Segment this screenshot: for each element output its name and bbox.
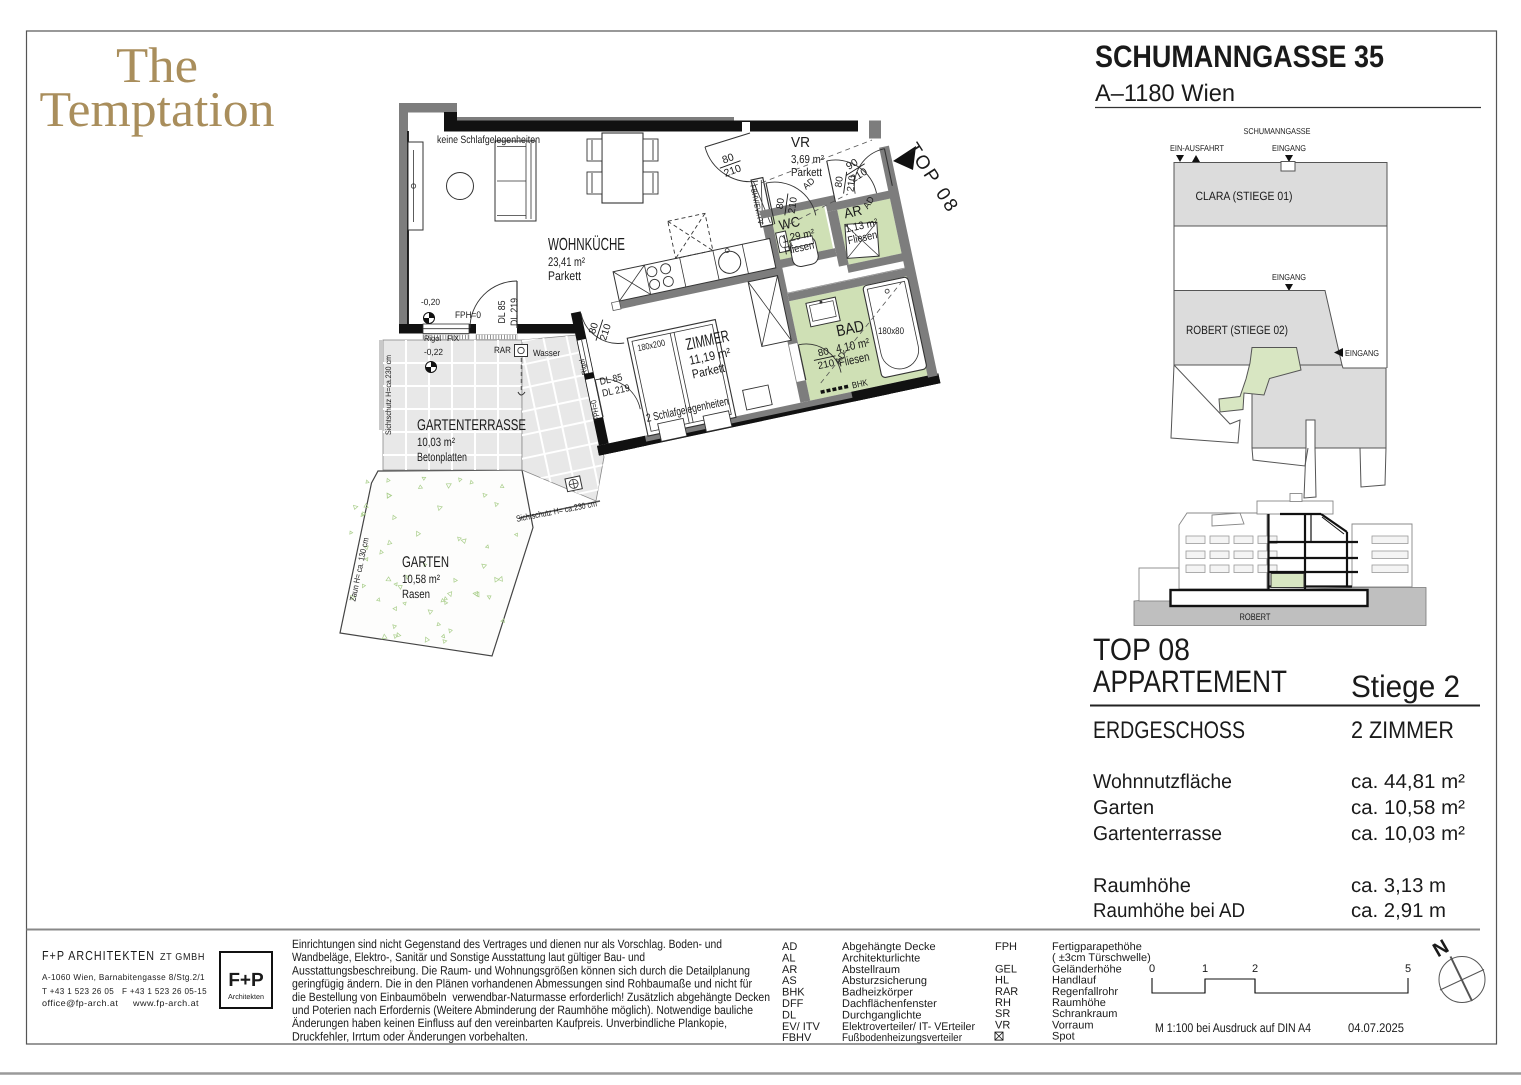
svg-text:EINGANG: EINGANG xyxy=(1272,143,1306,153)
svg-text:WOHNKÜCHE: WOHNKÜCHE xyxy=(548,234,625,254)
svg-text:AR: AR xyxy=(782,964,797,976)
svg-text:Badheizkörper: Badheizkörper xyxy=(842,987,913,999)
svg-text:APPARTEMENT: APPARTEMENT xyxy=(1093,664,1287,699)
svg-text:AS: AS xyxy=(782,975,797,987)
svg-text:FIX: FIX xyxy=(447,334,460,343)
svg-text:2 ZIMMER: 2 ZIMMER xyxy=(1351,717,1454,744)
svg-text:RAR: RAR xyxy=(494,345,511,355)
svg-text:Änderungen haben keinen Einflu: Änderungen haben keinen Einfluss auf den… xyxy=(292,1016,727,1030)
svg-text:0: 0 xyxy=(1149,963,1155,975)
svg-text:Schrankraum: Schrankraum xyxy=(1052,1008,1117,1020)
svg-text:die Bestellung von Einbaumöbel: die Bestellung von Einbaumöbeln verwendb… xyxy=(292,990,770,1004)
svg-text:Einrichtungen sind nicht Gegen: Einrichtungen sind nicht Gegenstand des … xyxy=(292,937,722,951)
svg-text:-0,22: -0,22 xyxy=(424,347,443,357)
svg-text:Temptation: Temptation xyxy=(40,81,275,137)
svg-text:Durchganglichte: Durchganglichte xyxy=(842,1009,922,1021)
svg-text:office@fp-arch.at www.fp-a: office@fp-arch.at www.fp-arch.at xyxy=(42,998,199,1008)
svg-text:2: 2 xyxy=(1252,963,1258,975)
svg-text:ZT GMBH: ZT GMBH xyxy=(160,952,205,963)
svg-text:Geländerhöhe: Geländerhöhe xyxy=(1052,963,1122,975)
svg-text:BHK: BHK xyxy=(782,987,805,999)
svg-text:HL: HL xyxy=(995,975,1009,987)
svg-text:VR: VR xyxy=(791,135,810,151)
svg-text:FPH: FPH xyxy=(995,941,1017,953)
svg-text:Vorraum: Vorraum xyxy=(1052,1019,1094,1031)
svg-text:Architekten: Architekten xyxy=(228,992,264,1001)
svg-text:DL: DL xyxy=(782,1009,796,1021)
svg-text:Handlauf: Handlauf xyxy=(1052,975,1097,987)
svg-text:EINGANG: EINGANG xyxy=(1345,348,1379,358)
svg-text:Gartenterrasse: Gartenterrasse xyxy=(1093,823,1222,845)
svg-text:A-1060 Wien, Barnabitengasse 8: A-1060 Wien, Barnabitengasse 8/Stg.2/1 xyxy=(42,972,205,982)
svg-text:Abstellraum: Abstellraum xyxy=(842,964,900,976)
svg-text:Raumhöhe: Raumhöhe xyxy=(1093,875,1191,897)
svg-text:EV/ ITV: EV/ ITV xyxy=(782,1021,821,1033)
svg-text:keine Schlafgelegenheiten: keine Schlafgelegenheiten xyxy=(437,134,540,146)
svg-text:AL: AL xyxy=(782,952,795,964)
svg-text:80: 80 xyxy=(775,197,788,210)
svg-text:23,41 m²: 23,41 m² xyxy=(548,255,585,269)
svg-text:1: 1 xyxy=(1202,963,1208,975)
svg-text:ca. 2,91 m: ca. 2,91 m xyxy=(1351,900,1446,922)
svg-text:FBHV: FBHV xyxy=(782,1032,812,1044)
svg-text:-0,20: -0,20 xyxy=(421,297,440,307)
svg-text:Dachflächenfenster: Dachflächenfenster xyxy=(842,998,937,1010)
svg-text:SCHUMANNGASSE 35: SCHUMANNGASSE 35 xyxy=(1095,39,1384,74)
svg-text:TOP 08: TOP 08 xyxy=(1093,632,1190,667)
svg-text:180x80: 180x80 xyxy=(878,326,904,337)
svg-text:SCHUMANNGASSE: SCHUMANNGASSE xyxy=(1244,126,1311,136)
svg-text:Architekturlichte: Architekturlichte xyxy=(842,952,920,964)
svg-text:DFF: DFF xyxy=(782,998,804,1010)
svg-text:ca. 10,03 m²: ca. 10,03 m² xyxy=(1351,823,1465,845)
svg-text:Parkett: Parkett xyxy=(548,269,581,283)
svg-text:5: 5 xyxy=(1405,963,1411,975)
svg-text:ca. 10,58 m²: ca. 10,58 m² xyxy=(1351,797,1465,819)
svg-text:A–1180 Wien: A–1180 Wien xyxy=(1095,80,1235,107)
svg-text:F+P: F+P xyxy=(228,970,264,991)
svg-text:und Poterien nach Erfordernis: und Poterien nach Erfordernis (Weitere A… xyxy=(292,1003,753,1017)
svg-text:GEL: GEL xyxy=(995,963,1017,975)
svg-text:RAR: RAR xyxy=(995,986,1018,998)
svg-text:Regenfallrohr: Regenfallrohr xyxy=(1052,986,1118,998)
svg-text:Raumhöhe: Raumhöhe xyxy=(1052,997,1106,1009)
svg-text:Garten: Garten xyxy=(1093,797,1154,819)
svg-text:Wohnnutzfläche: Wohnnutzfläche xyxy=(1093,771,1232,793)
svg-text:Sichtschutz H=ca.230 cm: Sichtschutz H=ca.230 cm xyxy=(384,355,393,435)
svg-text:AD: AD xyxy=(782,941,797,953)
svg-text:Raumhöhe bei AD: Raumhöhe bei AD xyxy=(1093,900,1245,922)
svg-text:Rigol: Rigol xyxy=(424,334,441,343)
svg-text:CLARA (STIEGE 01): CLARA (STIEGE 01) xyxy=(1196,189,1293,203)
svg-text:Stiege 2: Stiege 2 xyxy=(1351,669,1460,704)
svg-text:Absturzsicherung: Absturzsicherung xyxy=(842,975,927,987)
svg-text:10,03 m²: 10,03 m² xyxy=(417,435,455,449)
svg-text:T +43 1 523 26 05 F +43 1 52: T +43 1 523 26 05 F +43 1 523 26 05-15 xyxy=(42,986,207,996)
svg-text:EINGANG: EINGANG xyxy=(1272,272,1306,282)
svg-text:FPH=0: FPH=0 xyxy=(455,310,481,321)
svg-text:EIN-AUSFAHRT: EIN-AUSFAHRT xyxy=(1170,143,1224,153)
svg-text:SR: SR xyxy=(995,1008,1010,1020)
svg-text:Spot: Spot xyxy=(1052,1031,1075,1043)
svg-text:Fußbodenheizungsverteiler: Fußbodenheizungsverteiler xyxy=(842,1032,962,1044)
svg-text:F+P ARCHITEKTEN: F+P ARCHITEKTEN xyxy=(42,948,155,963)
svg-text:80: 80 xyxy=(833,175,846,188)
svg-text:ERDGESCHOSS: ERDGESCHOSS xyxy=(1093,717,1245,744)
svg-text:RH: RH xyxy=(995,997,1011,1009)
svg-text:geringfügig ändern. Die in den: geringfügig ändern. Die in den Plänen vo… xyxy=(292,977,752,991)
svg-text:ca. 3,13 m: ca. 3,13 m xyxy=(1351,875,1446,897)
svg-text:M 1:100 bei Ausdruck auf DIN A: M 1:100 bei Ausdruck auf DIN A4 xyxy=(1155,1021,1311,1035)
svg-text:DL 219: DL 219 xyxy=(510,298,521,326)
svg-text:GARTENTERRASSE: GARTENTERRASSE xyxy=(417,417,526,434)
svg-text:Wandbeläge, Elektro-, Sanitär: Wandbeläge, Elektro-, Sanitär und Sonsti… xyxy=(292,950,645,964)
svg-text:( ±3cm Türschwelle): ( ±3cm Türschwelle) xyxy=(1052,952,1151,964)
svg-text:ROBERT (STIEGE 02): ROBERT (STIEGE 02) xyxy=(1186,323,1288,337)
svg-text:ca. 44,81 m²: ca. 44,81 m² xyxy=(1351,771,1465,793)
svg-text:Rasen: Rasen xyxy=(402,587,430,601)
svg-text:DL 85: DL 85 xyxy=(497,300,508,323)
svg-text:10,58 m²: 10,58 m² xyxy=(402,572,440,586)
svg-text:ROBERT: ROBERT xyxy=(1240,612,1271,623)
svg-text:GARTEN: GARTEN xyxy=(402,554,449,571)
svg-text:VR: VR xyxy=(995,1019,1010,1031)
svg-text:Ausstattungsbeschreibung. Die: Ausstattungsbeschreibung. Die Raum- und … xyxy=(292,963,750,977)
svg-text:Druckfehler, Irrtum oder Änder: Druckfehler, Irrtum oder Änderungen vorb… xyxy=(292,1029,528,1043)
svg-text:Betonplatten: Betonplatten xyxy=(417,450,467,464)
svg-text:Wasser: Wasser xyxy=(533,348,560,358)
svg-text:Elektroverteiler/ IT- VErteile: Elektroverteiler/ IT- VErteiler xyxy=(842,1021,975,1033)
svg-text:Fertigparapethöhe: Fertigparapethöhe xyxy=(1052,941,1142,953)
svg-text:3,69 m²: 3,69 m² xyxy=(791,154,824,166)
svg-text:04.07.2025: 04.07.2025 xyxy=(1348,1021,1404,1035)
svg-text:Abgehängte Decke: Abgehängte Decke xyxy=(842,941,936,953)
